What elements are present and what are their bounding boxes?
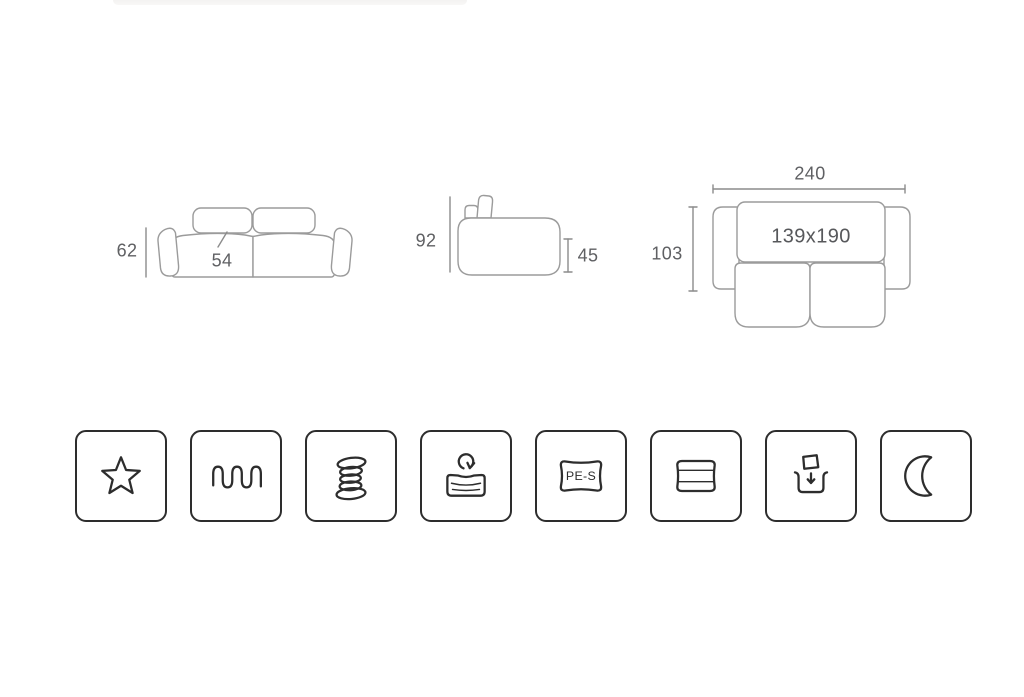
star-icon [92,447,150,505]
feature-layered-foam [650,430,742,522]
back-cushion-right [253,208,315,233]
top-seat-left [735,263,810,327]
side-height-label: 92 [416,231,437,252]
layered-foam-icon [667,447,725,505]
cropped-image-edge [113,0,467,5]
top-seat-right [810,263,885,327]
back-cushion-left [193,208,252,233]
overall-depth-label: 103 [651,244,682,265]
seat-cushion-right [253,233,335,277]
feature-wave-springs [190,430,282,522]
arm-left [158,228,179,276]
side-body [458,218,560,275]
feature-star [75,430,167,522]
feature-elastic-mattress [420,430,512,522]
side-cushion-small [465,206,478,219]
seat-depth-label: 54 [212,251,233,272]
feature-pes-foam: PE-S [535,430,627,522]
coil-springs-icon [322,447,380,505]
seat-height-label: 45 [578,246,599,267]
sofa-specification-panel: 62 54 92 45 [0,0,1024,697]
front-height-label: 62 [117,241,138,262]
sleep-function-icon [897,447,955,505]
side-cushion-tall [477,195,493,218]
sofa-front-drawing [105,190,365,290]
feature-coil-springs [305,430,397,522]
top-arm-right [884,207,910,289]
elastic-mattress-icon [437,447,495,505]
sofa-top-drawing [645,158,930,343]
bedding-storage-icon [782,447,840,505]
pes-foam-icon: PE-S [552,447,610,505]
front-view-diagram: 62 54 [105,190,365,290]
pes-label: PE-S [566,469,596,483]
feature-icon-row: PE-S [75,430,972,522]
side-view-diagram: 92 45 [395,185,615,285]
bed-size-label: 139x190 [771,226,851,249]
feature-sleep-function [880,430,972,522]
feature-bedding-storage [765,430,857,522]
arm-right [331,228,352,276]
wave-springs-icon [207,447,265,505]
top-view-diagram: 240 103 139x190 [645,158,930,343]
overall-width-label: 240 [794,164,825,185]
